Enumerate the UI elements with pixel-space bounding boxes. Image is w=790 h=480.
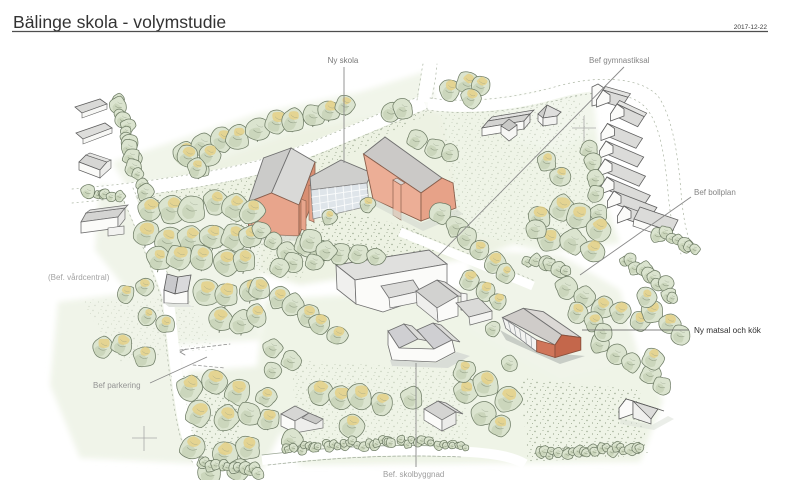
svg-text:Bef bollplan: Bef bollplan: [694, 188, 736, 197]
svg-text:Ny skola: Ny skola: [328, 56, 359, 65]
svg-text:Bef parkering: Bef parkering: [93, 381, 141, 390]
svg-text:Bälinge skola - volymstudie: Bälinge skola - volymstudie: [13, 12, 226, 32]
svg-text:2017-12-22: 2017-12-22: [734, 24, 768, 31]
svg-text:Bef gymnastiksal: Bef gymnastiksal: [589, 56, 650, 65]
svg-text:(Bef. vårdcentral): (Bef. vårdcentral): [48, 273, 110, 282]
svg-text:Ny matsal och kök: Ny matsal och kök: [694, 326, 762, 335]
svg-text:Bef. skolbyggnad: Bef. skolbyggnad: [383, 470, 444, 479]
